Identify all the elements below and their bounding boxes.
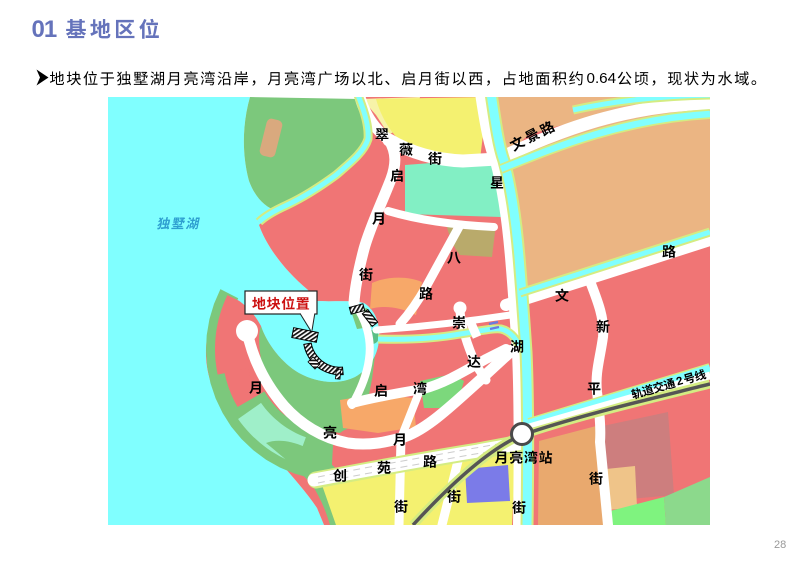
- svg-text:28: 28: [774, 539, 786, 551]
- svg-text:01: 01: [32, 16, 57, 43]
- svg-text:0.64: 0.64: [587, 70, 617, 87]
